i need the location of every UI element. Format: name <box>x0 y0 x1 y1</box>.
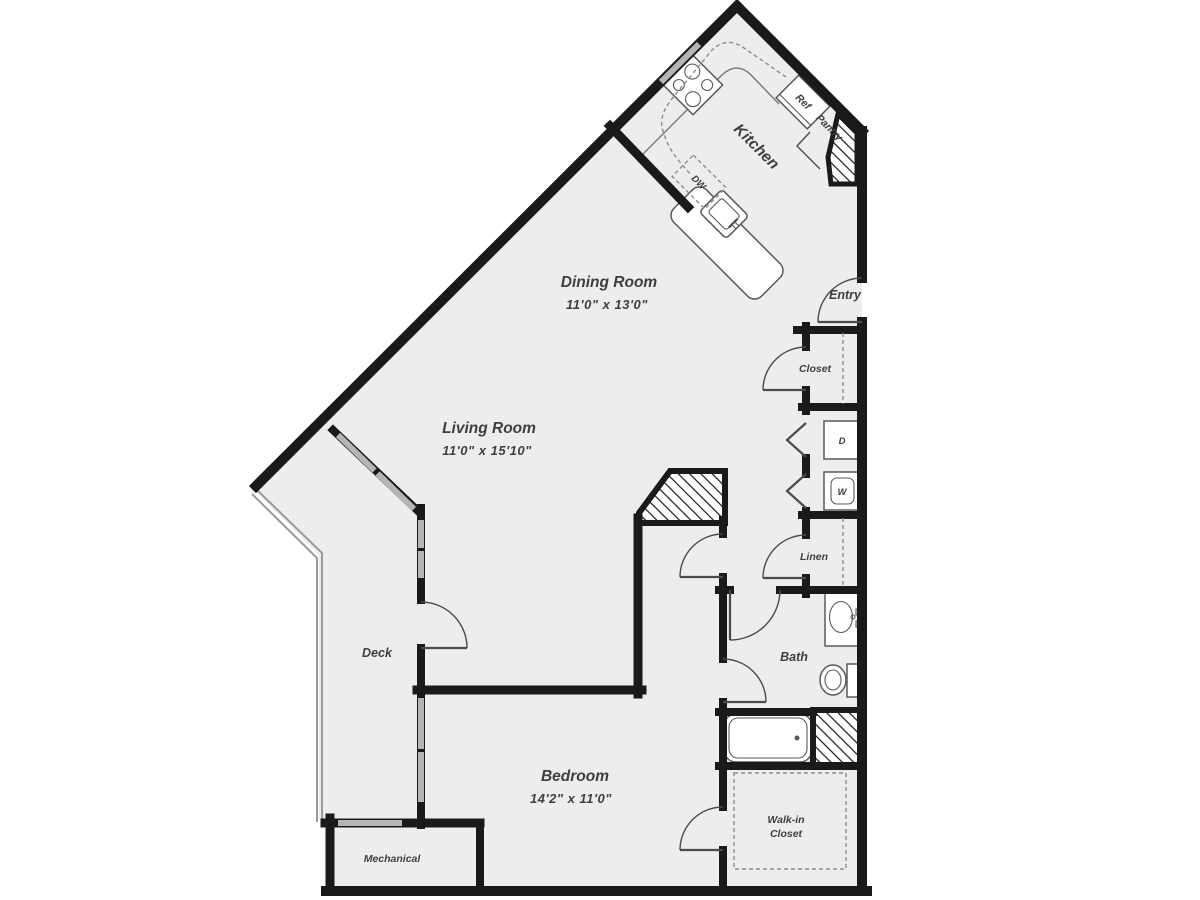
bedroom-dimensions: 14'2" x 11'0" <box>530 791 612 806</box>
floor-plan-page: Ref DW D W <box>0 0 1200 900</box>
linen-label: Linen <box>800 551 828 563</box>
bathtub-icon <box>724 714 812 762</box>
washer-label: W <box>838 487 848 498</box>
floor-plan: Ref DW D W <box>0 0 1200 900</box>
bedroom-label: Bedroom <box>541 768 609 785</box>
dining-room-dimensions: 11'0" x 13'0" <box>566 297 648 312</box>
bath-label: Bath <box>780 650 808 664</box>
dryer-box: D <box>824 421 861 459</box>
washer-box: W <box>824 472 861 510</box>
toilet-icon <box>820 664 862 697</box>
walk-in-closet-label-line1: Walk-in <box>767 814 804 826</box>
living-room-dimensions: 11'0" x 15'10" <box>442 443 532 458</box>
hatch-chase-bath <box>813 710 862 766</box>
living-room-label: Living Room <box>442 420 536 437</box>
mechanical-label: Mechanical <box>364 853 422 865</box>
entry-label: Entry <box>829 288 862 302</box>
dryer-label: D <box>839 436 846 447</box>
dining-room-label: Dining Room <box>561 274 658 291</box>
walk-in-closet-label-line2: Closet <box>770 828 803 840</box>
closet-label: Closet <box>799 363 832 375</box>
deck-label: Deck <box>362 646 393 660</box>
